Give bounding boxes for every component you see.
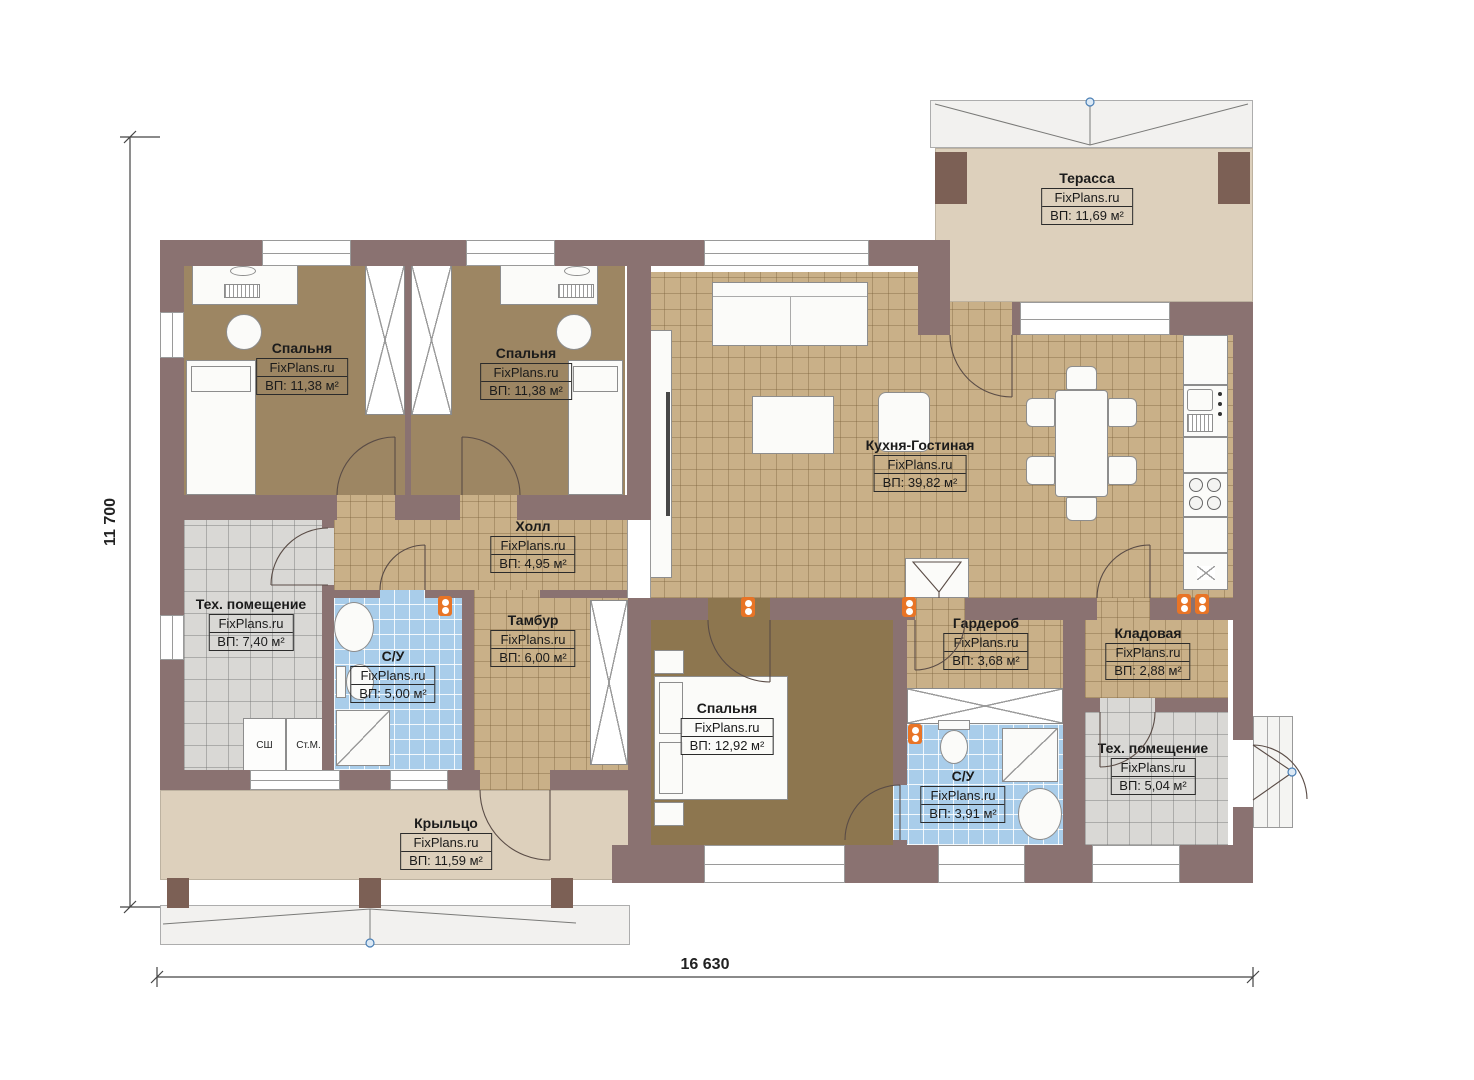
room-name: С/У [350, 648, 435, 664]
room-name: Тамбур [490, 612, 575, 628]
porch-pillar [167, 878, 189, 908]
wall-segment [893, 620, 907, 785]
dining-chair [1066, 366, 1097, 390]
window [704, 845, 845, 883]
room-label-tech-room-2: Тех. помещение FixPlans.ru ВП: 5,04 м² [1098, 740, 1208, 795]
room-label-bathroom-1: С/У FixPlans.ru ВП: 5,00 м² [350, 648, 435, 703]
vent-icon [230, 266, 256, 276]
watermark: FixPlans.ru [1111, 759, 1194, 777]
watermark: FixPlans.ru [491, 537, 574, 555]
watermark: FixPlans.ru [682, 719, 773, 737]
sink-bowl [1187, 389, 1213, 411]
label-box: FixPlans.ru ВП: 11,59 м² [400, 833, 492, 870]
window [160, 615, 184, 660]
room-area: ВП: 11,38 м² [257, 377, 347, 394]
room-label-wardrobe: Гардероб FixPlans.ru ВП: 3,68 м² [943, 615, 1028, 670]
bed-pillow [573, 366, 618, 392]
room-label-bedroom-3: Спальня FixPlans.ru ВП: 12,92 м² [681, 700, 774, 755]
nightstand [654, 802, 684, 826]
watermark: FixPlans.ru [401, 834, 491, 852]
kitchen-cabinet [1183, 517, 1228, 553]
burner-icon [1207, 496, 1221, 510]
label-box: FixPlans.ru ВП: 2,88 м² [1105, 643, 1190, 680]
heater-icon [438, 596, 452, 616]
room-name: Тех. помещение [1098, 740, 1208, 756]
watermark: FixPlans.ru [1042, 189, 1132, 207]
vestibule-closet [590, 600, 628, 765]
door-opening [1233, 740, 1253, 807]
label-box: FixPlans.ru ВП: 7,40 м² [208, 614, 293, 651]
dimension-label-bottom: 16 630 [681, 956, 730, 974]
porch-floor [160, 790, 630, 880]
dishwasher: СШ [243, 718, 286, 772]
wall-segment [322, 520, 334, 528]
wall-segment [517, 495, 627, 520]
terrace-roof-band [930, 100, 1253, 148]
room-label-bedroom-2: Спальня FixPlans.ru ВП: 11,38 м² [480, 345, 572, 400]
dining-table [1055, 390, 1108, 497]
room-area: ВП: 5,04 м² [1111, 777, 1194, 794]
dining-chair [1108, 456, 1137, 485]
wall-segment [1085, 698, 1100, 712]
bed-pillow [659, 742, 683, 794]
room-label-terrace: Терасса FixPlans.ru ВП: 11,69 м² [1041, 170, 1133, 225]
shower [1002, 728, 1058, 782]
room-label-vestibule: Тамбур FixPlans.ru ВП: 6,00 м² [490, 612, 575, 667]
label-box: FixPlans.ru ВП: 5,04 м² [1110, 758, 1195, 795]
watermark: FixPlans.ru [491, 631, 574, 649]
wall-segment [395, 495, 460, 520]
wall-segment [462, 590, 474, 770]
burner-icon [1189, 478, 1203, 492]
window [1092, 845, 1180, 883]
watermark: FixPlans.ru [257, 359, 347, 377]
room-name: Кухня-Гостиная [866, 437, 975, 453]
window [390, 770, 448, 790]
room-label-storage: Кладовая FixPlans.ru ВП: 2,88 м² [1105, 625, 1190, 680]
washing-machine-label: Ст.М. [296, 740, 321, 751]
watermark: FixPlans.ru [944, 634, 1027, 652]
porch-roof-band [160, 905, 630, 945]
label-box: FixPlans.ru ВП: 3,68 м² [943, 633, 1028, 670]
wall-segment [405, 258, 411, 495]
porch-pillar [359, 878, 381, 908]
wall-segment [1155, 698, 1228, 712]
label-box: FixPlans.ru ВП: 11,38 м² [256, 358, 348, 395]
heater-icon [1177, 594, 1191, 614]
wall-segment [334, 590, 380, 598]
kitchen-cabinet [1183, 335, 1228, 385]
room-name: Спальня [681, 700, 774, 716]
terrace-pillar [1218, 152, 1250, 204]
watermark: FixPlans.ru [209, 615, 292, 633]
dimension-line [120, 131, 160, 913]
window [466, 240, 555, 266]
room-name: Спальня [480, 345, 572, 361]
wardrobe-closet [907, 688, 1063, 724]
room-area: ВП: 39,82 м² [875, 474, 966, 491]
label-box: FixPlans.ru ВП: 12,92 м² [681, 718, 774, 755]
kitchen-cabinet [1183, 437, 1228, 473]
toilet [940, 730, 968, 764]
room-area: ВП: 4,95 м² [491, 555, 574, 572]
room-label-hall: Холл FixPlans.ru ВП: 4,95 м² [490, 518, 575, 573]
room-label-porch: Крыльцо FixPlans.ru ВП: 11,59 м² [400, 815, 492, 870]
dining-chair [1108, 398, 1137, 427]
wall-segment [628, 590, 651, 883]
wardrobe-closet [411, 265, 452, 415]
label-box: FixPlans.ru ВП: 6,00 м² [490, 630, 575, 667]
terrace-pillar [935, 152, 967, 204]
label-box: FixPlans.ru ВП: 11,38 м² [480, 363, 572, 400]
wall-segment [1150, 598, 1233, 620]
wall-segment [627, 240, 651, 520]
dining-chair [1026, 398, 1055, 427]
room-name: Гардероб [943, 615, 1028, 631]
dining-chair [1026, 456, 1055, 485]
watermark: FixPlans.ru [481, 364, 571, 382]
coffee-table [752, 396, 834, 454]
heater-icon [741, 597, 755, 617]
room-name: Тех. помещение [196, 596, 306, 612]
faucet-dot [1218, 392, 1222, 396]
nightstand [654, 650, 684, 674]
radiator-icon [558, 284, 594, 298]
bed-pillow [191, 366, 251, 392]
x-mark-icon [1197, 566, 1215, 580]
room-name: Терасса [1041, 170, 1133, 186]
sofa [712, 282, 868, 346]
label-box: FixPlans.ru ВП: 3,91 м² [920, 786, 1005, 823]
window [704, 240, 869, 266]
label-box: FixPlans.ru ВП: 39,82 м² [874, 455, 967, 492]
watermark: FixPlans.ru [921, 787, 1004, 805]
step-line [1279, 717, 1280, 827]
watermark: FixPlans.ru [351, 667, 434, 685]
room-area: ВП: 11,38 м² [481, 382, 571, 399]
dishwasher-label: СШ [256, 740, 272, 751]
room-name: С/У [920, 768, 1005, 784]
heater-icon [1195, 594, 1209, 614]
label-box: FixPlans.ru ВП: 11,69 м² [1041, 188, 1133, 225]
window [160, 312, 184, 358]
room-label-bedroom-1: Спальня FixPlans.ru ВП: 11,38 м² [256, 340, 348, 395]
sofa-back-line [713, 296, 867, 297]
heater-icon [908, 724, 922, 744]
room-area: ВП: 7,40 м² [209, 633, 292, 650]
room-area: ВП: 3,68 м² [944, 652, 1027, 669]
faucet-dot [1218, 412, 1222, 416]
window [250, 770, 340, 790]
wardrobe-closet [365, 265, 405, 415]
room-area: ВП: 5,00 м² [351, 685, 434, 702]
room-area: ВП: 3,91 м² [921, 805, 1004, 822]
room-area: ВП: 12,92 м² [682, 737, 773, 754]
room-label-kitchen-living: Кухня-Гостиная FixPlans.ru ВП: 39,82 м² [866, 437, 975, 492]
room-name: Крыльцо [400, 815, 492, 831]
faucet-dot [1218, 402, 1222, 406]
porch-pillar [551, 878, 573, 908]
sink [334, 602, 374, 652]
window [938, 845, 1025, 883]
vent-icon [564, 266, 590, 276]
tv-icon [666, 392, 670, 516]
wall-segment [448, 770, 480, 790]
room-label-tech-room-1: Тех. помещение FixPlans.ru ВП: 7,40 м² [196, 596, 306, 651]
window [1020, 302, 1170, 335]
burner-icon [1207, 478, 1221, 492]
wall-segment [1063, 598, 1085, 845]
sofa-divider [790, 297, 791, 346]
room-name: Спальня [256, 340, 348, 356]
wall-segment [322, 585, 334, 770]
wall-segment [184, 495, 337, 520]
wall-segment [1012, 302, 1020, 335]
room-area: ВП: 11,59 м² [401, 852, 491, 869]
floor-plan: СШ Ст.М. [0, 0, 1474, 1080]
wall-segment [540, 590, 627, 598]
cased-opening [627, 520, 651, 598]
toilet-tank [336, 666, 346, 698]
room-area: ВП: 6,00 м² [491, 649, 574, 666]
window [262, 240, 351, 266]
wall-segment [770, 598, 915, 620]
sink-drainboard [1187, 414, 1213, 432]
burner-icon [1189, 496, 1203, 510]
toilet-tank [938, 720, 970, 730]
label-box: FixPlans.ru ВП: 4,95 м² [490, 536, 575, 573]
room-label-bathroom-2: С/У FixPlans.ru ВП: 3,91 м² [920, 768, 1005, 823]
step-line [1267, 717, 1268, 827]
wall-segment [340, 770, 390, 790]
dining-chair [1066, 497, 1097, 521]
shower [336, 710, 390, 766]
heater-icon [902, 597, 916, 617]
watermark: FixPlans.ru [875, 456, 966, 474]
bed-pillow [659, 682, 683, 734]
wall-segment [893, 840, 907, 845]
radiator-icon [224, 284, 260, 298]
dimension-label-side: 11 700 [102, 498, 120, 546]
wall-segment [918, 240, 950, 335]
sink [1018, 788, 1062, 840]
wall-segment [160, 770, 250, 790]
room-name: Кладовая [1105, 625, 1190, 641]
vent-hood [905, 558, 969, 598]
label-box: FixPlans.ru ВП: 5,00 м² [350, 666, 435, 703]
watermark: FixPlans.ru [1106, 644, 1189, 662]
room-area: ВП: 2,88 м² [1106, 662, 1189, 679]
entrance-steps [1253, 716, 1293, 828]
room-name: Холл [490, 518, 575, 534]
room-area: ВП: 11,69 м² [1042, 207, 1132, 224]
wall-segment [651, 598, 708, 620]
